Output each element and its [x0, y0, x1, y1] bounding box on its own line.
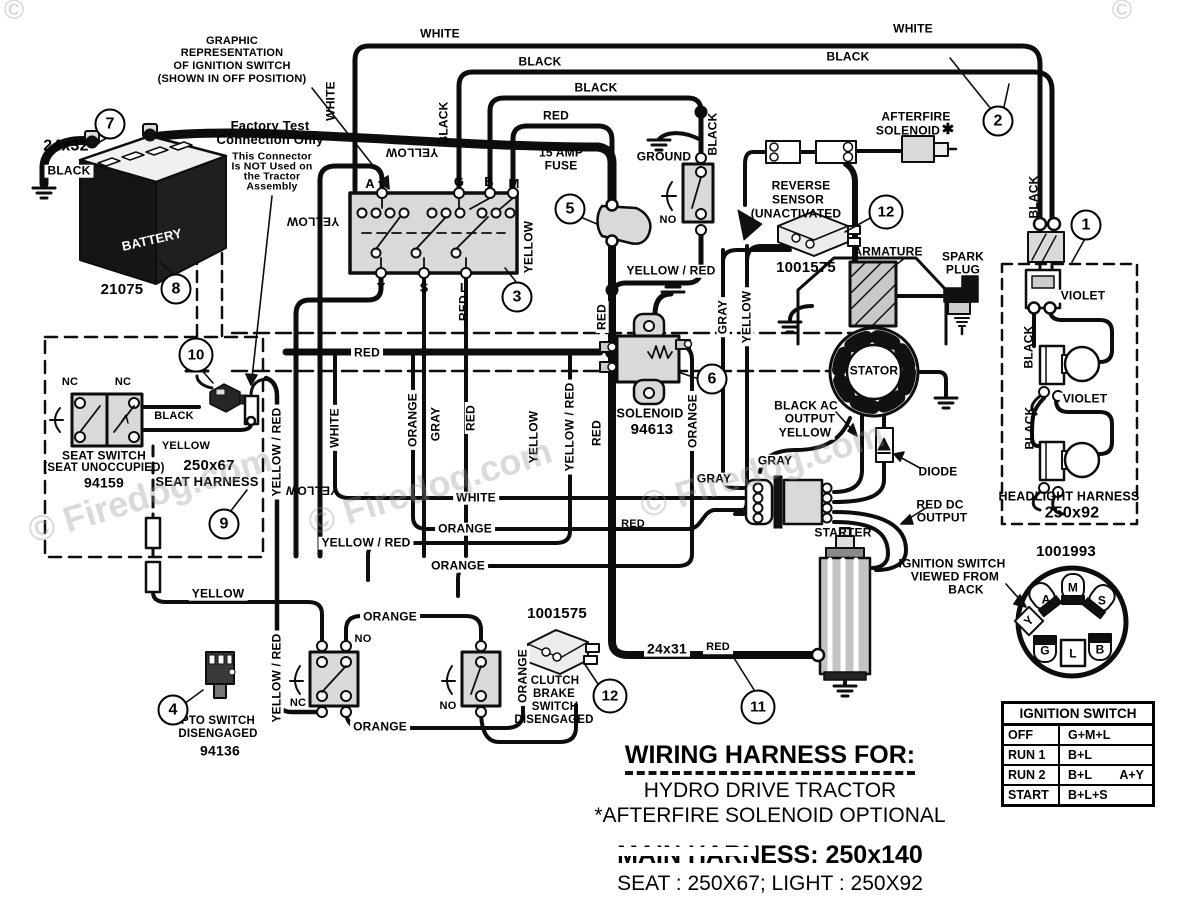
wire-label-yellow-seat-vert: YELLOW	[286, 484, 339, 497]
wire-label-black-mid: BLACK	[575, 82, 618, 95]
armature-label: ARMATURE	[853, 246, 922, 259]
starter-component	[812, 528, 870, 680]
nc-label-left: NC	[62, 377, 78, 389]
seat-harness-number: 250x67	[183, 458, 234, 474]
wire-label-violet-1: VIOLET	[1058, 290, 1109, 303]
wire-label-red-solenoid-top: RED	[596, 301, 609, 333]
wire-label-yellow-seat: YELLOW	[162, 441, 210, 453]
key-view-label-line1: IGNITION SWITCH	[899, 558, 1006, 571]
wire-label-black-top-left: BLACK	[519, 56, 562, 69]
no-label-top-switch: NO	[660, 215, 677, 227]
wire-label-gray-1: GRAY	[755, 455, 795, 468]
wire-yellow-seat	[142, 424, 251, 430]
wire-label-black-hl-2: BLACK	[1024, 407, 1037, 450]
wire-label-violet-2: VIOLET	[1060, 393, 1111, 406]
callout-3: 3	[502, 282, 533, 313]
wire-label-red-top: RED	[543, 110, 569, 123]
title-seat-light-harness: SEAT : 250X67; LIGHT : 250X92	[545, 872, 995, 896]
afterfire-star-icon: ✱	[942, 122, 955, 138]
cable-label-24x31: 24x31	[644, 642, 690, 657]
wire-label-black-hl-1: BLACK	[1023, 326, 1036, 369]
seat-switch-part-number: 94159	[84, 476, 124, 491]
starter-label: STARTER	[814, 527, 871, 540]
title-hydro-drive-tractor: HYDRO DRIVE TRACTOR	[545, 779, 995, 803]
clutch-brake-line4: DISENGAGED	[514, 714, 593, 726]
ignition-table-title: IGNITION SWITCH	[1004, 704, 1152, 726]
table-cell-terminals: B+L	[1068, 768, 1092, 782]
wire-label-yellow-right: YELLOW	[741, 288, 754, 347]
wire-gray-vert	[723, 250, 744, 488]
callout-5: 5	[555, 194, 586, 225]
key-terminal-b: B	[1096, 644, 1105, 657]
diode-label: DIODE	[918, 466, 957, 479]
battery-component	[80, 124, 226, 284]
wire-label-black-seat: BLACK	[151, 411, 197, 423]
afterfire-label-line1: AFTERFIRE	[881, 111, 950, 124]
table-cell-pos: RUN 2	[1004, 766, 1060, 784]
ign-terminal-g: G	[454, 175, 464, 189]
table-cell-pos: OFF	[1004, 726, 1060, 744]
wire-label-yellow-red-mid: YELLOW / RED	[564, 379, 577, 474]
wire-label-orange-run2: ORANGE	[428, 560, 488, 573]
wire-yellow-vert	[735, 246, 747, 514]
key-view-label-line2: VIEWED FROM	[911, 571, 999, 584]
clutch-brake-line2: BRAKE	[533, 688, 575, 700]
seat-switch-label-line2: (SEAT UNOCCUPIED)	[43, 462, 164, 474]
callout-2: 2	[983, 106, 1014, 137]
wire-solenoid-ground-hook	[655, 294, 671, 315]
wire-label-yellow-red-bottom: YELLOW / RED	[271, 630, 284, 725]
wire-label-orange-pto-bottom: ORANGE	[350, 721, 410, 734]
table-row-start: START B+L+S	[1004, 786, 1152, 804]
ign-terminal-y: Y	[377, 281, 386, 295]
title-wiring-harness-for: WIRING HARNESS FOR:	[545, 741, 995, 775]
ign-terminal-a: A	[365, 177, 375, 191]
reverse-sensor-line3: (UNACTIVATED	[751, 208, 842, 221]
seat-connector-pins	[146, 396, 258, 592]
wire-label-yellow-red-solenoid: YELLOW / RED	[623, 265, 718, 278]
wire-label-red-starter: RED	[703, 642, 733, 654]
wire-label-gray-2: GRAY	[694, 473, 734, 486]
ground-stator	[935, 398, 957, 408]
wire-label-black-battery: BLACK	[45, 165, 94, 178]
afterfire-label-line2: SOLENOID	[876, 125, 940, 138]
ign-terminal-b: B	[484, 175, 494, 189]
headlight-harness-label: HEADLIGHT HARNESS	[999, 490, 1140, 503]
ign-terminal-s: S	[420, 281, 429, 295]
nc-label-pto: NC	[290, 698, 306, 710]
nc-label-right: NC	[115, 377, 131, 389]
note-graphic-rep-line2: REPRESENTATION	[181, 48, 284, 60]
no-label-pto: NO	[355, 634, 372, 646]
clutch-brake-part-number: 1001575	[527, 606, 587, 622]
key-terminal-s: S	[1098, 595, 1106, 608]
title-block: WIRING HARNESS FOR: HYDRO DRIVE TRACTOR …	[545, 741, 995, 896]
wire-label-white-vert: WHITE	[325, 81, 338, 121]
note-connector-line4: Assembly	[246, 181, 297, 192]
callout-4: 4	[158, 695, 189, 726]
ground-battery	[33, 188, 55, 198]
ground-switch	[648, 140, 670, 150]
note-graphic-rep-line3: OF IGNITION SWITCH	[173, 61, 290, 73]
fuse-component	[598, 200, 651, 247]
wire-label-white-top-right: WHITE	[893, 23, 933, 36]
note-graphic-rep-line1: GRAPHIC	[206, 36, 258, 48]
stator-label: STATOR	[850, 365, 899, 378]
callout-12-sensor: 12	[869, 195, 904, 230]
clipped-area	[596, 847, 756, 856]
wire-label-white-top-left: WHITE	[420, 28, 460, 41]
fuse-label-line1: 15 AMP	[539, 147, 583, 160]
wire-label-yellow-horiz: YELLOW	[386, 146, 439, 159]
wire-label-yellow-bottom: YELLOW	[189, 588, 248, 601]
wire-label-orange-brake: ORANGE	[517, 646, 530, 706]
pto-switch-component	[206, 652, 235, 698]
wire-label-white-run: WHITE	[453, 492, 499, 505]
wire-label-yellow-red-seat: YELLOW / RED	[271, 404, 284, 499]
red-dc-output-line2: OUTPUT	[917, 512, 968, 525]
wire-label-orange-solenoid: ORANGE	[687, 391, 700, 451]
note-factory-test-line2: Connection Only	[217, 133, 324, 147]
wire-label-red-ign-bottom: RED	[458, 295, 471, 321]
spark-plug-label-line2: PLUG	[946, 264, 980, 277]
wire-engine-ground	[790, 306, 812, 320]
pto-switch-label-line2: DISENGAGED	[178, 728, 257, 740]
note-graphic-rep-line4: (SHOWN IN OFF POSITION)	[158, 74, 307, 86]
title-afterfire-optional: *AFTERFIRE SOLENOID OPTIONAL	[545, 804, 995, 828]
ground-starter	[834, 686, 856, 696]
wire-label-red-solenoid-bottom: RED	[591, 420, 604, 446]
wire-label-orange-run1: ORANGE	[435, 523, 495, 536]
ign-terminal-m: M	[508, 177, 519, 191]
wire-label-yellow-mid: YELLOW	[528, 408, 541, 467]
wire-label-yellow-vert: YELLOW	[287, 215, 340, 228]
reverse-sensor-line2: SENSOR	[772, 194, 824, 207]
diode-component	[876, 428, 893, 462]
wire-label-orange-pto-top: ORANGE	[360, 611, 420, 624]
black-ac-output-line1: BLACK AC	[774, 400, 838, 413]
callout-12-brake: 12	[593, 679, 628, 714]
wire-label-black-headlight-feed: BLACK	[1028, 176, 1041, 219]
wire-label-black-switch: BLACK	[707, 113, 720, 156]
clutch-brake-line1: CLUTCH	[531, 675, 579, 687]
wire-label-red-bus: RED	[351, 347, 383, 360]
wire-label-black-top-right: BLACK	[827, 51, 870, 64]
key-terminal-m: M	[1068, 582, 1078, 595]
clutch-brake-switch-component	[528, 630, 599, 674]
starter-terminal	[812, 649, 824, 661]
callout-6: 6	[697, 364, 728, 395]
callout-10: 10	[179, 338, 214, 373]
ignition-switch-table: IGNITION SWITCH OFF G+M+L RUN 1 B+L RUN …	[1001, 701, 1155, 807]
battery-part-number: 21075	[101, 282, 144, 298]
headlight-harness-number: 250x92	[1045, 506, 1100, 523]
wire-black-ac	[834, 416, 862, 492]
spark-plug-label-line1: SPARK	[942, 251, 984, 264]
headlight-harness-components	[1026, 218, 1099, 497]
wire-label-yellow-red-run: YELLOW / RED	[318, 537, 413, 550]
key-switch-part-number: 1001993	[1036, 544, 1096, 560]
key-terminal-l: L	[1069, 648, 1077, 661]
ignition-switch-graphic	[350, 188, 518, 278]
wire-label-red-mid-right: RED	[621, 519, 645, 531]
table-row-run1: RUN 1 B+L	[1004, 746, 1152, 766]
pto-switch-part-number: 94136	[200, 744, 240, 759]
callout-11: 11	[741, 690, 776, 725]
wire-label-white-mid: WHITE	[329, 405, 342, 451]
seat-switch-component	[50, 394, 142, 446]
ground-label: GROUND	[637, 151, 692, 164]
key-terminal-a: A	[1042, 594, 1051, 607]
table-row-run2: RUN 2 B+LA+Y	[1004, 766, 1152, 786]
key-view-label-line3: BACK	[948, 584, 983, 597]
seat-ground-relay	[210, 384, 247, 412]
callout-1: 1	[1071, 210, 1102, 241]
spark-plug-component	[944, 276, 978, 334]
wire-label-orange-mid: ORANGE	[407, 390, 420, 450]
table-cell-terminals: B+L	[1068, 748, 1092, 762]
callout-8: 8	[161, 274, 192, 305]
wiring-diagram-page: GRAPHIC REPRESENTATION OF IGNITION SWITC…	[0, 0, 1180, 903]
no-label-brake: NO	[440, 701, 457, 713]
wire-label-yellow-ac: YELLOW	[776, 427, 835, 440]
solenoid-label: SOLENOID	[617, 407, 684, 420]
fuse-label-line2: FUSE	[545, 160, 578, 173]
seat-switch-label-line1: SEAT SWITCH	[62, 450, 146, 463]
table-row-off: OFF G+M+L	[1004, 726, 1152, 746]
pto-switch-label-line1: PTO SWITCH	[181, 715, 255, 727]
reverse-sensor-part-number: 1001575	[776, 260, 836, 276]
table-cell-alt: A+Y	[1119, 768, 1144, 782]
cable-label-24x32: 24x32	[43, 139, 89, 156]
mid-connectors	[746, 476, 832, 528]
wire-label-gray-right: GRAY	[717, 297, 730, 337]
black-ac-output-line2: OUTPUT	[785, 413, 836, 426]
wire-stator-ground	[918, 372, 946, 396]
wire-label-gray-mid: GRAY	[430, 407, 443, 441]
table-cell-pos: START	[1004, 786, 1060, 804]
wire-label-black-vert-ign: BLACK	[438, 102, 451, 145]
table-cell-terminals: G+M+L	[1068, 728, 1110, 742]
ign-terminal-l: L	[460, 281, 468, 295]
seat-harness-label: SEAT HARNESS	[155, 475, 258, 489]
red-dc-output-line1: RED DC	[916, 499, 963, 512]
callout-7: 7	[95, 109, 126, 140]
wire-label-red-mid: RED	[465, 402, 478, 434]
wire-label-yellow-ign-right: YELLOW	[523, 221, 536, 274]
key-terminal-g: G	[1040, 645, 1050, 658]
note-factory-test-line1: Factory Test	[231, 119, 310, 133]
table-cell-pos: RUN 1	[1004, 746, 1060, 764]
solenoid-part-number: 94613	[631, 422, 674, 438]
clutch-brake-line3: SWITCH	[532, 701, 579, 713]
table-cell-terminals: B+L+S	[1068, 788, 1108, 802]
reverse-sensor-line1: REVERSE	[772, 180, 831, 193]
callout-9: 9	[209, 509, 240, 540]
